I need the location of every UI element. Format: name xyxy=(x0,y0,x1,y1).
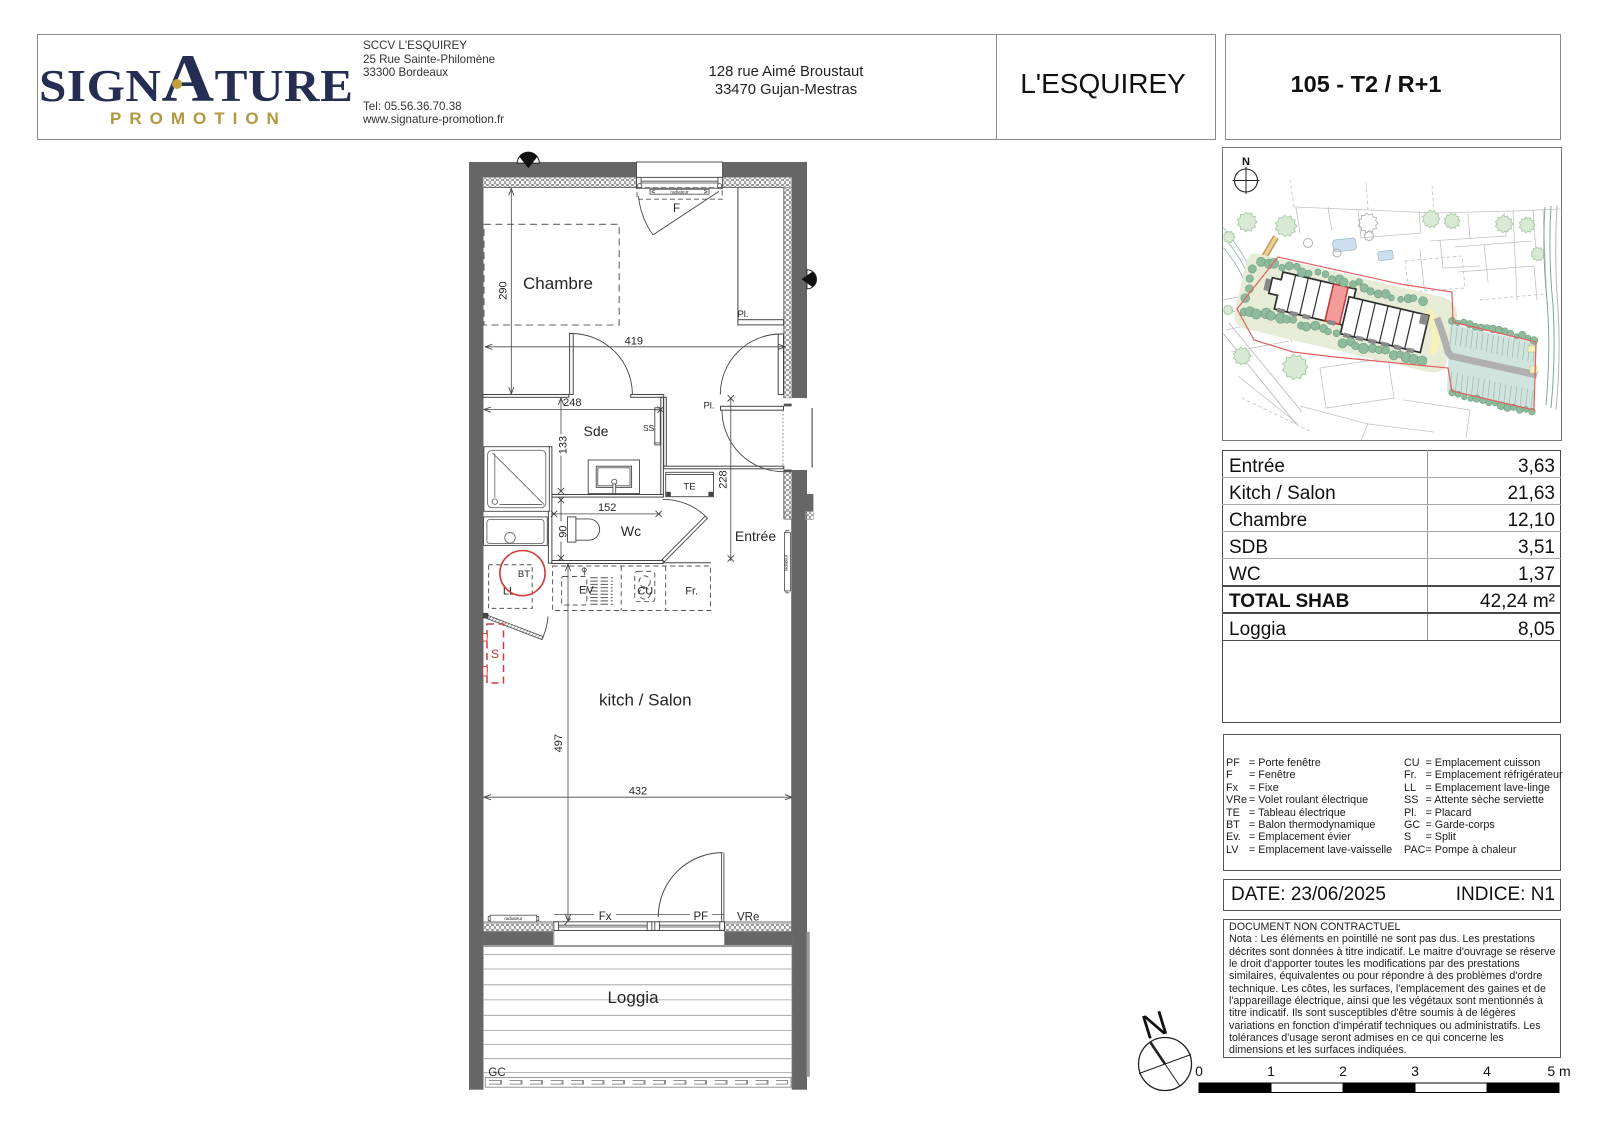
svg-text:F: F xyxy=(673,203,680,215)
svg-text:248: 248 xyxy=(563,397,581,409)
svg-text:Pl.: Pl. xyxy=(703,401,714,412)
svg-text:Fx: Fx xyxy=(599,911,612,923)
svg-text:90: 90 xyxy=(557,525,569,537)
svg-text:Sde: Sde xyxy=(584,423,609,439)
svg-text:SS: SS xyxy=(643,423,655,433)
svg-text:228: 228 xyxy=(718,470,730,488)
svg-text:497: 497 xyxy=(553,734,565,752)
svg-text:kitch / Salon: kitch / Salon xyxy=(599,691,692,710)
svg-text:3: 3 xyxy=(1411,1063,1419,1079)
svg-text:152: 152 xyxy=(598,502,616,514)
svg-text:CU: CU xyxy=(637,586,653,598)
svg-text:0: 0 xyxy=(1195,1063,1203,1079)
svg-text:GC: GC xyxy=(488,1067,505,1079)
svg-text:2: 2 xyxy=(1339,1063,1347,1079)
svg-text:432: 432 xyxy=(629,786,647,798)
svg-text:radiateur: radiateur xyxy=(504,916,523,921)
svg-text:5 m: 5 m xyxy=(1547,1063,1570,1079)
svg-text:1: 1 xyxy=(1267,1063,1275,1079)
svg-text:Loggia: Loggia xyxy=(607,988,659,1007)
svg-text:Chambre: Chambre xyxy=(523,274,593,293)
svg-text:S: S xyxy=(491,647,499,661)
svg-text:133: 133 xyxy=(557,436,569,454)
svg-text:radiateur: radiateur xyxy=(670,189,689,194)
svg-text:4: 4 xyxy=(1483,1063,1491,1079)
svg-text:PF: PF xyxy=(693,911,708,923)
svg-text:Entrée: Entrée xyxy=(735,528,776,544)
svg-text:N: N xyxy=(1137,1004,1172,1048)
svg-text:N: N xyxy=(1242,156,1250,168)
svg-text:BT: BT xyxy=(518,569,530,580)
svg-text:Wc: Wc xyxy=(621,523,641,539)
svg-text:TE: TE xyxy=(683,482,695,493)
svg-text:VRe: VRe xyxy=(737,912,759,924)
svg-text:EV: EV xyxy=(579,585,594,597)
svg-text:419: 419 xyxy=(625,335,643,347)
svg-text:290: 290 xyxy=(498,281,510,299)
svg-text:Pl.: Pl. xyxy=(737,309,748,320)
svg-text:radiateur: radiateur xyxy=(783,554,788,571)
svg-text:Fr.: Fr. xyxy=(685,586,698,598)
